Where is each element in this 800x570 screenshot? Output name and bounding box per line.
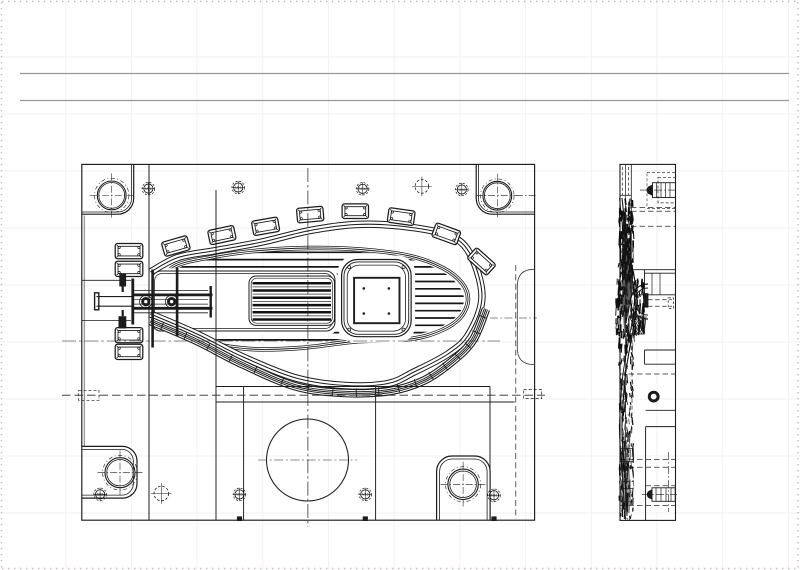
svg-text:M16: M16 bbox=[362, 493, 369, 497]
svg-text:M16: M16 bbox=[491, 494, 498, 498]
svg-text:M16: M16 bbox=[97, 493, 104, 497]
svg-text:M16: M16 bbox=[236, 493, 243, 497]
svg-text:M16: M16 bbox=[359, 187, 366, 191]
svg-text:M16: M16 bbox=[458, 188, 465, 192]
svg-text:M16: M16 bbox=[235, 186, 242, 190]
svg-text:M16: M16 bbox=[145, 187, 152, 191]
